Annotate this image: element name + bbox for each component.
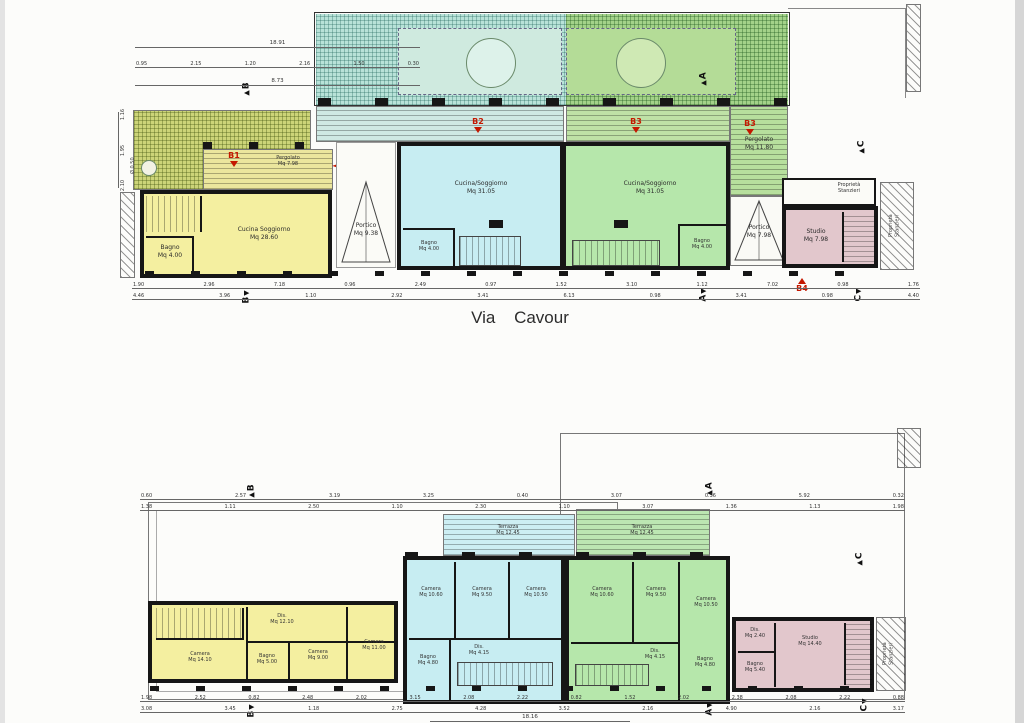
room-label-camera: Camera Mq 10.50 <box>511 586 561 598</box>
room-label-camera: Camera Mq 10.50 <box>683 596 729 608</box>
chimney <box>489 220 503 228</box>
room-label-dis: Dis. Mq 4.15 <box>635 648 675 660</box>
room-label-studio: Studio Mq 14.40 <box>784 635 836 647</box>
room-label-bagno: Bagno Mq 4.00 <box>678 238 726 250</box>
property-wall-hatch <box>906 4 921 92</box>
room-label-dis: Dis. Mq 12.10 <box>252 613 312 625</box>
room-label-dis: Dis. Mq 4.15 <box>459 644 499 656</box>
partition <box>288 641 290 679</box>
party-wall-hatch <box>120 192 135 278</box>
partition <box>571 642 680 644</box>
stairs <box>844 623 872 685</box>
portico-right-label: Portico Mq 7.98 <box>733 224 785 239</box>
room-label-camera: Camera Mq 11.00 <box>350 639 398 651</box>
partition <box>449 640 451 700</box>
entry-label: Proprietà Stanzieri <box>824 182 874 194</box>
partition <box>678 562 680 642</box>
floor-plan-sheet: Pergolato Mq 11.80 Portico Mq 7.98 Ø 0.5… <box>0 0 1024 723</box>
unit-marker-b1: B1 <box>224 152 244 167</box>
scan-edge-left <box>0 0 5 723</box>
partition <box>738 651 774 653</box>
room-label-camera: Camera Mq 10.60 <box>573 586 631 598</box>
sill-row <box>145 271 880 276</box>
partition <box>454 562 456 640</box>
room-label-camera: Camera Mq 9.50 <box>457 586 507 598</box>
room-label-camera: Camera Mq 9.00 <box>292 649 344 661</box>
unit-marker-b2: B2 <box>468 118 488 133</box>
dim-row-top: 0.952.151.202.161.500.30 <box>135 60 420 68</box>
dim-row-top-2: 1.381.112.501.102.301.103.071.361.131.98 <box>140 503 905 511</box>
section-marker-c: ▲C <box>857 141 867 154</box>
unit-b2-first-plan: Camera Mq 10.60 Camera Mq 9.50 Camera Mq… <box>403 556 565 704</box>
unit-b2-plan: Cucina/Soggiorno Mq 31.05 Bagno Mq 4.00 <box>397 142 564 270</box>
pier-row <box>203 142 333 149</box>
dim-sub-top: 8.73 <box>135 78 420 86</box>
sill-row <box>150 686 875 691</box>
partition <box>632 562 634 642</box>
room-label-studio: Studio Mq 7.98 <box>790 228 842 243</box>
chimney <box>614 220 628 228</box>
stairs <box>146 196 202 232</box>
unit-b1-first-plan: Dis. Mq 12.10 Camera Mq 14.10 Bagno Mq 5… <box>148 601 398 683</box>
dim-total-top: 18.91 <box>135 40 420 48</box>
dim-row-bottom-1: 1.902.967.180.962.490.971.523.101.127.02… <box>132 281 920 289</box>
section-marker-a: ▲A <box>699 72 709 85</box>
dim-row-bottom-1: 1.982.520.822.482.023.152.082.220.821.52… <box>140 694 905 702</box>
partition <box>774 623 776 687</box>
partition <box>246 607 248 679</box>
portico-left-label: Portico Mq 9.38 <box>338 222 394 237</box>
tree-icon <box>616 38 666 88</box>
terrace-b3-label: Terrazza Mq 12.45 <box>602 524 682 536</box>
pergola-strip-b3 <box>566 106 730 142</box>
stairs <box>457 662 553 686</box>
stairs <box>572 240 660 266</box>
unit-b3-plan: Cucina/Soggiorno Mq 31.05 Bagno Mq 4.00 <box>562 142 730 270</box>
room-label-camera: Camera Mq 10.60 <box>409 586 453 598</box>
room-label-bagno: Bagno Mq 4.00 <box>403 240 455 252</box>
pergolato-b3-label: Pergolato Mq 11.80 <box>733 136 785 151</box>
tree-icon <box>466 38 516 88</box>
room-label-cucina-soggiorno: Cucina Soggiorno Mq 28.60 <box>208 226 320 241</box>
partition <box>508 562 510 640</box>
pergolato-b1-label: Pergolato Mq 7.98 <box>266 155 310 167</box>
stairs <box>842 212 874 262</box>
unit-b4-plan: Studio Mq 7.98 <box>782 206 878 268</box>
dim-col-left: 1.161.952.10 <box>118 112 128 188</box>
small-tree-icon <box>141 160 157 176</box>
dim-row-bottom-2: 3.083.451.182.754.283.522.164.902.163.17 <box>140 705 905 713</box>
room-label-bagno: Bagno Mq 4.80 <box>409 654 447 666</box>
unit-b4-first-plan: Dis. Mq 2.40 Bagno Mq 5.40 Studio Mq 14.… <box>732 617 874 692</box>
unit-b1-plan: Bagno Mq 4.00 Cucina Soggiorno Mq 28.60 <box>140 190 332 278</box>
room-label-dis: Dis. Mq 2.40 <box>738 627 772 639</box>
property-owner-label: Proprietà Stanzieri <box>882 626 895 682</box>
boundary-line <box>788 8 906 98</box>
stairs <box>459 236 521 266</box>
room-label-bagno: Bagno Mq 4.00 <box>146 244 194 259</box>
room-label-bagno: Bagno Mq 5.40 <box>738 661 772 673</box>
room-label-camera: Camera Mq 9.50 <box>635 586 677 598</box>
partition <box>409 638 561 640</box>
street-label: Via Cavour <box>410 308 630 328</box>
dim-row-bottom-2: 4.463.961.102.923.416.130.983.410.984.40 <box>132 292 920 300</box>
room-label-cucina-soggiorno: Cucina/Soggiorno Mq 31.05 <box>411 180 551 195</box>
room-label-cucina-soggiorno: Cucina/Soggiorno Mq 31.05 <box>580 180 720 195</box>
room-label-bagno: Bagno Mq 5.00 <box>248 653 286 665</box>
property-owner-label: Proprietà Stanzieri <box>888 196 901 256</box>
unit-b3-first-plan: Camera Mq 10.60 Camera Mq 9.50 Camera Mq… <box>565 556 730 704</box>
room-label-camera: Camera Mq 14.10 <box>158 651 242 663</box>
dim-total-bottom: 18.16 <box>430 714 630 722</box>
terrace-b2-label: Terrazza Mq 12.45 <box>468 524 548 536</box>
scan-edge-right <box>1015 0 1024 723</box>
room-label-bagno: Bagno Mq 4.80 <box>683 656 727 668</box>
pergola-strip-b2 <box>316 106 564 142</box>
stairs <box>575 664 649 686</box>
section-marker-c: ▲C <box>855 553 865 566</box>
dim-row-top-1: 0.602.573.193.250.403.070.365.920.32 <box>140 492 905 500</box>
partition <box>346 607 348 679</box>
unit-marker-b3: B3 <box>626 118 646 133</box>
legend-hatch-box <box>897 428 921 468</box>
tree-diameter-label: Ø 0.50 <box>130 146 137 186</box>
unit-marker-b3: B3 <box>740 120 760 135</box>
stairs <box>156 608 244 640</box>
